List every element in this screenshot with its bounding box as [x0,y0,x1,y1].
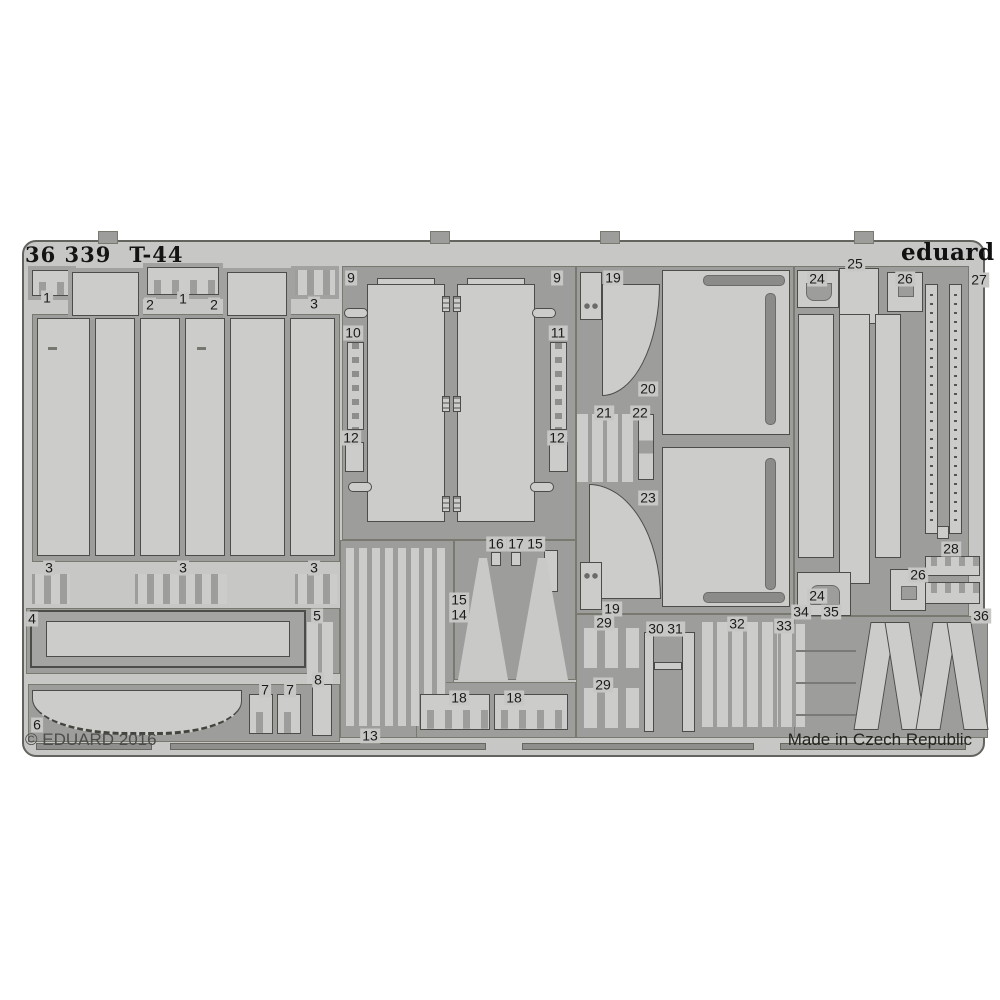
part-number-label: 3 [43,561,55,576]
part-number-label: 28 [941,542,961,557]
part-number-label: 24 [807,272,827,287]
part-number-label: 13 [360,729,380,744]
part-number-label: 9 [551,271,563,286]
catalog-number: 36 339 [25,242,111,267]
part-number-label: 8 [312,673,324,688]
made-in-text: Made in Czech Republic [788,730,972,750]
part-number-label: 30 [646,622,666,637]
part-number-label: 2 [144,298,156,313]
part-number-label: 18 [449,691,469,706]
part-number-label: 18 [504,691,524,706]
sheet-title: 36 339T-44 [25,242,183,267]
part-number-label: 12 [341,431,361,446]
part-number-label: 25 [845,257,865,272]
part-number-label: 1 [41,291,53,306]
part-number-label: 20 [638,382,658,397]
brand-logo: eduard [901,239,995,266]
part-number-label: 33 [774,619,794,634]
part-number-label: 9 [345,271,357,286]
part-number-label: 26 [908,568,928,583]
part-number-label: 19 [603,271,623,286]
part-number-label: 36 [971,609,991,624]
part-number-label: 4 [26,612,38,627]
part-number-label: 17 [506,537,526,552]
part-number-label: 32 [727,617,747,632]
part-number-label: 12 [547,431,567,446]
part-number-label: 3 [177,561,189,576]
part-number-label: 22 [630,406,650,421]
part-number-labels: 1212333345877699101112121617151514181813… [24,242,983,755]
photo-etch-fret: 1212333345877699101112121617151514181813… [22,240,985,757]
part-number-label: 21 [594,406,614,421]
part-number-label: 2 [208,298,220,313]
part-number-label: 3 [308,297,320,312]
part-number-label: 23 [638,491,658,506]
part-number-label: 16 [486,537,506,552]
photo-etch-product-scan: 36 339T-44 eduard © EDUARD 2016 Made in … [0,0,1000,1000]
part-number-label: 29 [593,678,613,693]
part-number-label: 11 [549,326,568,341]
part-number-label: 29 [594,616,614,631]
part-number-label: 5 [311,609,323,624]
subject-name: T-44 [129,242,183,267]
part-number-label: 27 [969,273,989,288]
part-number-label: 7 [284,683,296,698]
part-number-label: 34 [791,605,811,620]
part-number-label: 14 [449,608,469,623]
part-number-label: 3 [308,561,320,576]
part-number-label: 15 [525,537,545,552]
part-number-label: 7 [259,683,271,698]
part-number-label: 26 [895,272,915,287]
part-number-label: 24 [807,589,827,604]
copyright-text: © EDUARD 2016 [25,730,157,750]
part-number-label: 15 [449,593,469,608]
part-number-label: 35 [821,605,841,620]
part-number-label: 1 [177,292,189,307]
part-number-label: 10 [343,326,363,341]
part-number-label: 31 [665,622,685,637]
